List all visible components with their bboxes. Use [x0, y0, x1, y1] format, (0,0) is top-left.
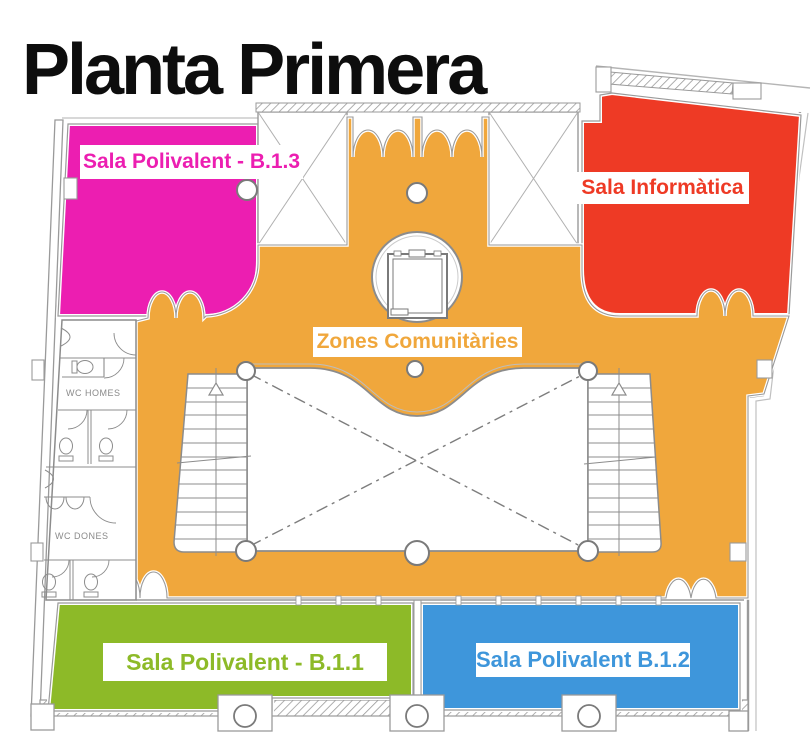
skylight-room-right [489, 112, 578, 245]
staircase-right [584, 368, 661, 556]
column [406, 705, 428, 727]
zone-label-sala-informatica: Sala Informàtica [576, 172, 749, 204]
room-label-wc-homes: WC HOMES [66, 388, 121, 398]
column [578, 705, 600, 727]
zone-label-sala-polivalent-b11: Sala Polivalent - B.1.1 [103, 643, 387, 681]
wc-block [42, 320, 136, 600]
column [407, 183, 427, 203]
corner-pier [31, 704, 54, 730]
top-wall-hatch [609, 72, 733, 94]
column [237, 362, 255, 380]
staircase-left [174, 368, 251, 556]
floor-plan-page: Planta Primera Sala Polivalent - B.1.3 S… [0, 0, 812, 745]
corner-pier [729, 711, 748, 731]
page-title: Planta Primera [22, 24, 602, 116]
column [578, 541, 598, 561]
column [237, 180, 257, 200]
zone-label-zones-comunitaries: Zones Comunitàries [313, 327, 522, 357]
column [236, 541, 256, 561]
column [405, 541, 429, 565]
zone-label-sala-polivalent-b12: Sala Polivalent B.1.2 [476, 643, 690, 677]
column [234, 705, 256, 727]
room-label-wc-dones: WC DONES [55, 531, 109, 541]
column [407, 361, 423, 377]
zone-sala-informatica [582, 93, 801, 315]
elevator [372, 232, 462, 322]
zone-label-sala-polivalent-b13: Sala Polivalent - B.1.3 [80, 145, 303, 179]
column [579, 362, 597, 380]
